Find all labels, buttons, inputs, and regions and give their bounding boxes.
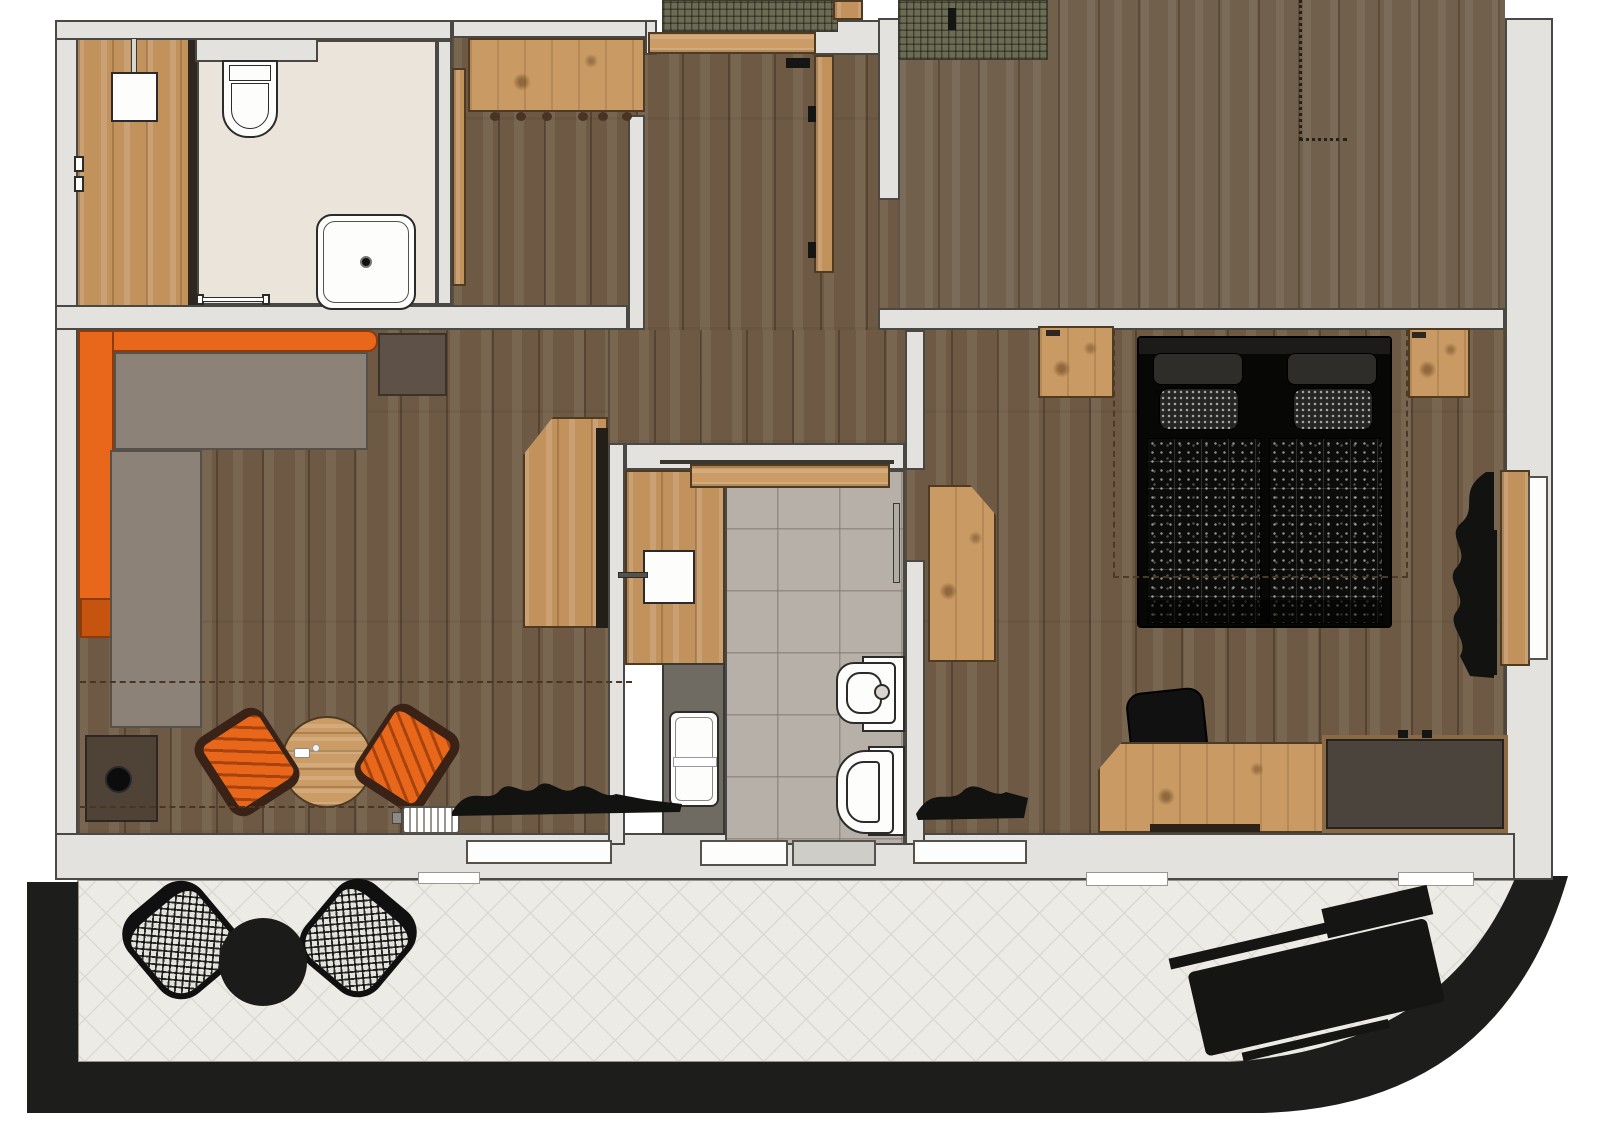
towel-rail xyxy=(202,297,264,302)
door-hinge-icon xyxy=(808,106,816,122)
door-handle-icon xyxy=(948,8,956,30)
entry-doormat xyxy=(662,0,838,32)
outer-wall-top-left xyxy=(55,20,452,40)
hall-wardrobe xyxy=(468,38,645,112)
sofa-seat-top xyxy=(114,352,368,450)
bathroom-left-wall xyxy=(608,443,625,845)
radiator xyxy=(402,806,460,834)
coat-hook-icon xyxy=(622,112,632,121)
radiator-pipe xyxy=(392,812,402,824)
washbasin xyxy=(222,60,278,138)
roof-slope-dashed-line xyxy=(80,806,404,808)
entrance-frame-wood xyxy=(833,0,863,20)
coat-hook-icon xyxy=(542,112,552,121)
sink-unit xyxy=(111,72,158,122)
outer-wall-left xyxy=(55,20,78,845)
wall-top-hall xyxy=(452,20,648,38)
hall-right-wall xyxy=(878,18,900,200)
coat-hook-icon xyxy=(490,112,500,121)
floor-plan-canvas xyxy=(0,0,1600,1145)
toilet xyxy=(836,750,894,834)
towel-rail xyxy=(893,503,900,583)
tableware-icon xyxy=(312,744,320,752)
door-hinge-icon xyxy=(74,176,84,192)
nightstand-handle xyxy=(1412,332,1426,338)
bedroom-left-wall-upper xyxy=(905,330,925,470)
faucet-icon xyxy=(874,684,890,700)
inner-doormat xyxy=(898,0,1048,60)
washbasin-bowl xyxy=(231,83,269,129)
outer-wall-right xyxy=(1505,18,1553,880)
bedroom-window-east xyxy=(1528,476,1548,660)
terrace-step xyxy=(418,872,480,884)
kitchenette-back-panel xyxy=(596,428,608,628)
bed-clearance-dashed-outline xyxy=(1113,330,1408,578)
door-handle-icon xyxy=(786,58,810,68)
terrace-step xyxy=(1086,872,1168,886)
sofa-seat-side xyxy=(110,450,202,728)
sofa-back-left xyxy=(78,330,114,635)
utility-right-wall xyxy=(437,40,452,305)
terrace-door-fixed-panel xyxy=(792,840,876,866)
shower-shelf xyxy=(673,757,717,767)
shower-tray xyxy=(316,214,416,310)
bathroom-sliding-door xyxy=(690,464,890,488)
toilet-bowl xyxy=(846,761,880,823)
coat-hook-icon xyxy=(598,112,608,121)
nightstand-left xyxy=(1038,326,1114,398)
entrance-door-leaf-open xyxy=(814,55,834,273)
drain-icon xyxy=(360,256,372,268)
utility-wall-jut xyxy=(195,38,318,62)
vanity-sink xyxy=(643,550,695,604)
roof-dotted-line xyxy=(1299,0,1302,140)
coat-hook-icon xyxy=(516,112,526,121)
sideboard-knob xyxy=(1398,730,1408,738)
desk xyxy=(1098,742,1325,833)
bedroom-left-wall-lower xyxy=(905,560,925,845)
roof-slope-dashed-line xyxy=(80,681,632,683)
bedroom-top-wall xyxy=(878,308,1505,330)
utility-sliding-door xyxy=(452,68,466,286)
roof-dotted-line xyxy=(1299,138,1347,141)
corner-wardrobe xyxy=(928,485,996,662)
entrance-threshold xyxy=(648,32,816,54)
bidet xyxy=(836,662,896,724)
washbasin-inner xyxy=(229,65,271,81)
living-room-window xyxy=(466,840,612,864)
nightstand-handle xyxy=(1046,330,1060,336)
sideboard xyxy=(1322,735,1508,833)
door-hinge-icon xyxy=(74,156,84,172)
bed-foot-band xyxy=(1147,600,1383,624)
tableware-icon xyxy=(294,748,310,758)
plant-icon xyxy=(105,766,132,793)
hall-left-wall xyxy=(628,115,645,330)
nightstand-right xyxy=(1408,328,1470,398)
sideboard-knob xyxy=(1422,730,1432,738)
door-hinge-icon xyxy=(808,242,816,258)
bedroom-window-south xyxy=(913,840,1027,864)
patio-table xyxy=(219,918,307,1006)
side-table xyxy=(378,333,447,396)
terrace-door xyxy=(700,840,788,866)
sofa-back-top xyxy=(82,330,378,352)
desk-drawer xyxy=(1150,824,1260,832)
shower-enclosure xyxy=(662,663,725,835)
bedroom-window-sill xyxy=(1500,470,1530,666)
shower-tray xyxy=(669,711,719,807)
coat-hook-icon xyxy=(578,112,588,121)
faucet-icon xyxy=(618,572,648,578)
